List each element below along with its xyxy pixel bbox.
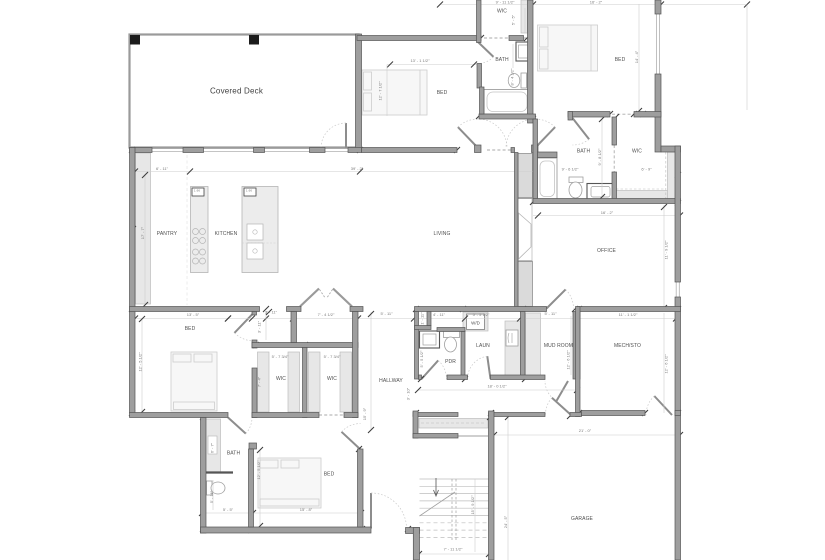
svg-text:12' - 5 1/2": 12' - 5 1/2" — [256, 460, 261, 480]
svg-text:15' - 9": 15' - 9" — [362, 407, 367, 420]
svg-text:6' - 7": 6' - 7" — [210, 442, 215, 453]
svg-text:12' - 6 1/2": 12' - 6 1/2" — [566, 350, 571, 370]
svg-text:5' - 7 3/4": 5' - 7 3/4" — [272, 354, 289, 359]
svg-text:39' - 2": 39' - 2" — [351, 166, 364, 171]
svg-text:18' - 0 1/2": 18' - 0 1/2" — [487, 384, 507, 389]
svg-text:5' - 5": 5' - 5" — [511, 14, 516, 25]
svg-text:5' - 5": 5' - 5" — [223, 507, 234, 512]
svg-text:HALLWAY: HALLWAY — [379, 378, 403, 384]
svg-text:14' - 4": 14' - 4" — [634, 50, 639, 63]
svg-text:15' - 8": 15' - 8" — [300, 507, 313, 512]
svg-text:9' - 11 1/2": 9' - 11 1/2" — [496, 0, 515, 5]
svg-text:BED: BED — [185, 326, 196, 332]
svg-text:1' - 11": 1' - 11" — [420, 312, 425, 325]
svg-text:7' - 4": 7' - 4" — [257, 376, 262, 387]
svg-text:9' - 6 1/2": 9' - 6 1/2" — [562, 167, 579, 172]
svg-text:WIC: WIC — [276, 376, 286, 382]
svg-text:WIC: WIC — [327, 376, 337, 382]
svg-text:LAUN: LAUN — [476, 343, 490, 349]
svg-text:Covered Deck: Covered Deck — [210, 87, 264, 96]
svg-text:15' - 9 1/2": 15' - 9 1/2" — [470, 495, 475, 515]
svg-text:BATH: BATH — [495, 57, 509, 63]
svg-text:PDR: PDR — [445, 359, 456, 365]
svg-text:6' - 9": 6' - 9" — [641, 167, 652, 172]
svg-text:W/D: W/D — [471, 321, 480, 326]
svg-text:3' - 10": 3' - 10" — [406, 387, 411, 400]
svg-text:5' - 5 1/2": 5' - 5 1/2" — [473, 312, 490, 317]
svg-text:PANTRY: PANTRY — [157, 231, 178, 237]
svg-text:3' - 11": 3' - 11" — [265, 310, 278, 315]
svg-text:7' - 4 1/2": 7' - 4 1/2" — [318, 312, 335, 317]
svg-text:12' - 5 1/2": 12' - 5 1/2" — [138, 352, 143, 372]
svg-text:BED: BED — [437, 90, 448, 96]
svg-text:12' - 7 1/2": 12' - 7 1/2" — [378, 81, 383, 101]
svg-text:12' - 6 1/2": 12' - 6 1/2" — [664, 354, 669, 374]
svg-text:17' - 7": 17' - 7" — [140, 226, 145, 239]
svg-text:MUD ROOM: MUD ROOM — [544, 343, 573, 349]
svg-text:16' - 2": 16' - 2" — [601, 210, 614, 215]
svg-text:MECH/STO: MECH/STO — [614, 343, 641, 349]
svg-text:LIVING: LIVING — [434, 231, 451, 237]
svg-text:11' - 9 1/2": 11' - 9 1/2" — [664, 240, 669, 259]
svg-text:5' - 7 3/4": 5' - 7 3/4" — [324, 354, 341, 359]
svg-text:BATH: BATH — [227, 451, 241, 457]
svg-text:6' - 11": 6' - 11" — [156, 166, 169, 171]
svg-text:5' - 5 1/2": 5' - 5 1/2" — [419, 350, 424, 367]
svg-text:OFFICE: OFFICE — [597, 248, 616, 254]
svg-text:BED: BED — [324, 472, 335, 478]
svg-text:11' - 1 1/2": 11' - 1 1/2" — [619, 312, 638, 317]
svg-text:13' - 5": 13' - 5" — [187, 312, 200, 317]
svg-text:KITCHEN: KITCHEN — [215, 231, 238, 237]
svg-text:BED: BED — [615, 57, 626, 63]
svg-text:13' - 1 1/2": 13' - 1 1/2" — [410, 58, 430, 63]
svg-text:7' - 11 1/2": 7' - 11 1/2" — [444, 547, 463, 552]
svg-text:WIC: WIC — [497, 9, 507, 15]
svg-text:5' - 11": 5' - 11" — [544, 311, 557, 316]
svg-text:16' - 2": 16' - 2" — [590, 0, 603, 5]
svg-text:1.66: 1.66 — [194, 189, 200, 193]
svg-text:24' - 5": 24' - 5" — [503, 515, 508, 528]
svg-text:BATH: BATH — [577, 149, 591, 155]
svg-text:WIC: WIC — [632, 149, 642, 155]
svg-text:1.66: 1.66 — [246, 189, 252, 193]
svg-text:3' - 11": 3' - 11" — [257, 320, 262, 333]
svg-text:GARAGE: GARAGE — [571, 516, 594, 522]
svg-text:8' - 4 1/2": 8' - 4 1/2" — [510, 68, 515, 85]
svg-text:9' - 8 1/2": 9' - 8 1/2" — [597, 148, 602, 165]
svg-text:5' - 11": 5' - 11" — [380, 311, 393, 316]
svg-text:4' - 11": 4' - 11" — [433, 312, 446, 317]
svg-text:5' - 11": 5' - 11" — [209, 490, 214, 503]
svg-text:21' - 0": 21' - 0" — [579, 428, 592, 433]
